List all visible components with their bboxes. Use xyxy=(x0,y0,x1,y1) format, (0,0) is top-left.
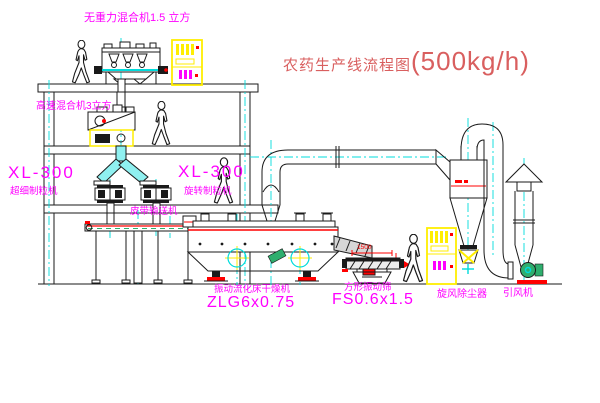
label-granulator-left-model: XL-300 xyxy=(8,164,75,181)
label-granulator-left-name: 超细制粒机 xyxy=(10,187,58,197)
label-granulator-mid-model: XL-300 xyxy=(178,163,245,180)
label-cyclone: 旋风除尘器 xyxy=(437,290,487,300)
label-dryer-model: ZLG6x0.75 xyxy=(207,295,295,311)
label-fan: 引风机 xyxy=(503,289,533,299)
worker-figure-roof xyxy=(72,40,89,82)
label-high-speed-mixer: 高速混合机3立方 xyxy=(36,102,112,112)
title-capacity: (500kg/h) xyxy=(411,46,530,77)
control-cabinet-1 xyxy=(172,40,202,85)
dimension-1500: 1500 xyxy=(357,245,371,252)
belt-conveyor-machine xyxy=(85,221,198,283)
control-cabinet-2 xyxy=(427,228,456,284)
label-belt-conveyor: 皮带输送机 xyxy=(130,207,178,217)
flow-diagram-canvas: 农药生产线流程图 (500kg/h) 无重力混合机1.5 立方 高速混合机3立方… xyxy=(0,0,600,403)
worker-figure-floor2 xyxy=(152,101,169,144)
diagram-title: 农药生产线流程图 (500kg/h) xyxy=(283,46,530,77)
draft-fan-machine xyxy=(517,263,547,285)
title-text: 农药生产线流程图 xyxy=(283,46,411,75)
worker-figure-ground xyxy=(404,234,423,281)
label-gravity-mixer: 无重力混合机1.5 立方 xyxy=(84,13,190,24)
vibrating-screen-machine xyxy=(342,250,410,283)
label-screen-model: FS0.6x1.5 xyxy=(332,292,414,308)
label-granulator-mid-name: 旋转制粒机 xyxy=(184,187,232,197)
